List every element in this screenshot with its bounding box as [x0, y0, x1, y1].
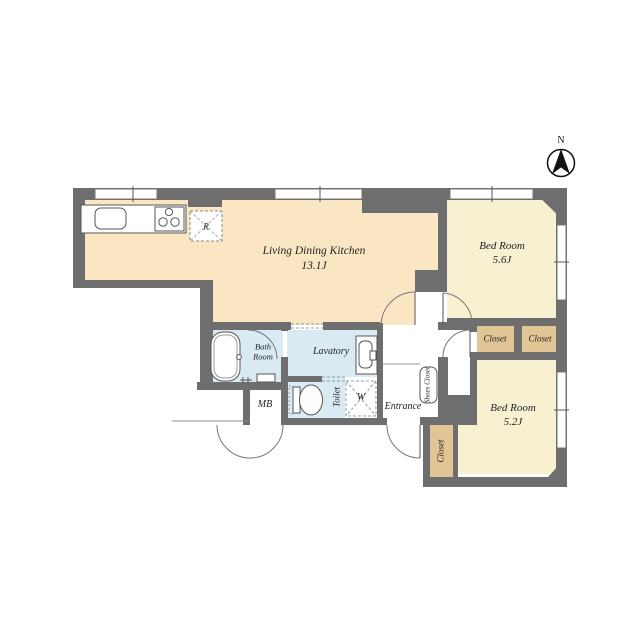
ldk-size: 13.1J	[301, 260, 326, 272]
bath-label-line2: Room	[253, 353, 273, 362]
wall-bedroom2-west	[470, 357, 477, 425]
wall-pillar-kitchen	[188, 200, 222, 207]
wall-bath-bottom	[197, 382, 288, 390]
wall-closet3-right	[453, 425, 458, 477]
wall-bedroom1-west	[438, 212, 447, 292]
door-arc-bedroom2	[443, 330, 470, 357]
wall-closet3-left	[423, 417, 430, 487]
toilet-label: Toilet	[332, 387, 341, 407]
wall-ldk-bottom-1	[200, 322, 291, 330]
wall-left-lower	[200, 280, 213, 390]
entrance-label: Entrance	[385, 402, 422, 413]
floor-plan: N Living Dining Kitchen 13.1J Bed Room 5…	[0, 0, 640, 640]
bedroom1-size: 5.6J	[493, 255, 512, 267]
closet1-label: Closet	[483, 334, 506, 343]
wall-bottom	[423, 477, 567, 487]
lavatory-faucet	[370, 351, 376, 360]
ldk-floor-lower	[205, 280, 440, 325]
door-arc-meter-box	[217, 425, 283, 458]
toilet-tank	[293, 387, 300, 413]
toilet-bowl	[300, 385, 323, 415]
wall-mb-toilet	[281, 390, 288, 425]
wall-bath-lav-bottom	[281, 357, 288, 390]
wall-ldk-bottom-2	[323, 322, 380, 330]
door-arc-entrance	[387, 425, 420, 458]
compass-north-label: N	[557, 136, 564, 147]
refrigerator-label: R	[203, 222, 209, 231]
washer-label: W	[357, 393, 365, 404]
closet3-label: Closet	[436, 439, 445, 462]
lavatory-label: Lavatory	[313, 347, 349, 358]
shoes-closet-label: Shoes Closet	[424, 367, 431, 403]
wall-bedroom1-bottom	[447, 318, 567, 326]
bedroom2-size: 5.2J	[504, 417, 523, 429]
window-kitchen	[95, 189, 157, 199]
closet2-label: Closet	[528, 334, 551, 343]
floor-plan-drawing	[0, 0, 640, 640]
wall-corridor-bottom-1	[283, 418, 387, 425]
bedroom2-floor-ext	[458, 425, 558, 474]
wall-lavatory-hall	[377, 323, 383, 418]
wall-closet-divider	[514, 326, 522, 352]
wall-lav-toilet	[287, 376, 322, 382]
bath-label-line1: Bath	[255, 343, 271, 352]
bath-counter	[257, 374, 275, 382]
kitchen-sink	[95, 208, 126, 229]
wall-bath-lav-top	[281, 322, 288, 331]
wall-mb-left	[243, 388, 250, 425]
wall-hall-pocket	[438, 357, 448, 395]
bedroom1-label: Bed Room	[479, 241, 525, 253]
wall-pillar-top	[362, 200, 447, 213]
wall-closet-bottom	[470, 352, 567, 360]
bathtub-faucet	[237, 355, 242, 360]
wall-closet-left	[470, 318, 477, 332]
stove	[155, 207, 184, 231]
wall-left	[73, 188, 85, 287]
window-ldk	[275, 189, 362, 199]
compass	[548, 149, 575, 177]
meter-box-label: MB	[258, 400, 272, 411]
wall-ldk-step	[73, 280, 213, 288]
bedroom2-label: Bed Room	[490, 403, 536, 415]
ldk-label: Living Dining Kitchen	[263, 245, 366, 257]
